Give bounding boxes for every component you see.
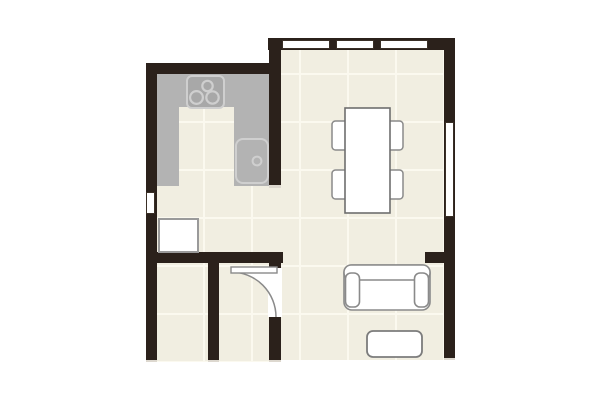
cabinet xyxy=(159,219,198,252)
floor-plan xyxy=(0,0,600,400)
sofa-arm-left xyxy=(346,273,360,307)
furniture-layer xyxy=(0,0,600,400)
sofa xyxy=(344,265,430,310)
sofa-arm-right xyxy=(415,273,429,307)
sink-icon xyxy=(236,139,268,183)
dining-set xyxy=(332,108,403,213)
door-leaf xyxy=(231,267,277,273)
cooktop-icon xyxy=(187,76,224,108)
door xyxy=(231,267,282,317)
dining-table xyxy=(345,108,390,213)
coffee-table xyxy=(367,331,422,357)
